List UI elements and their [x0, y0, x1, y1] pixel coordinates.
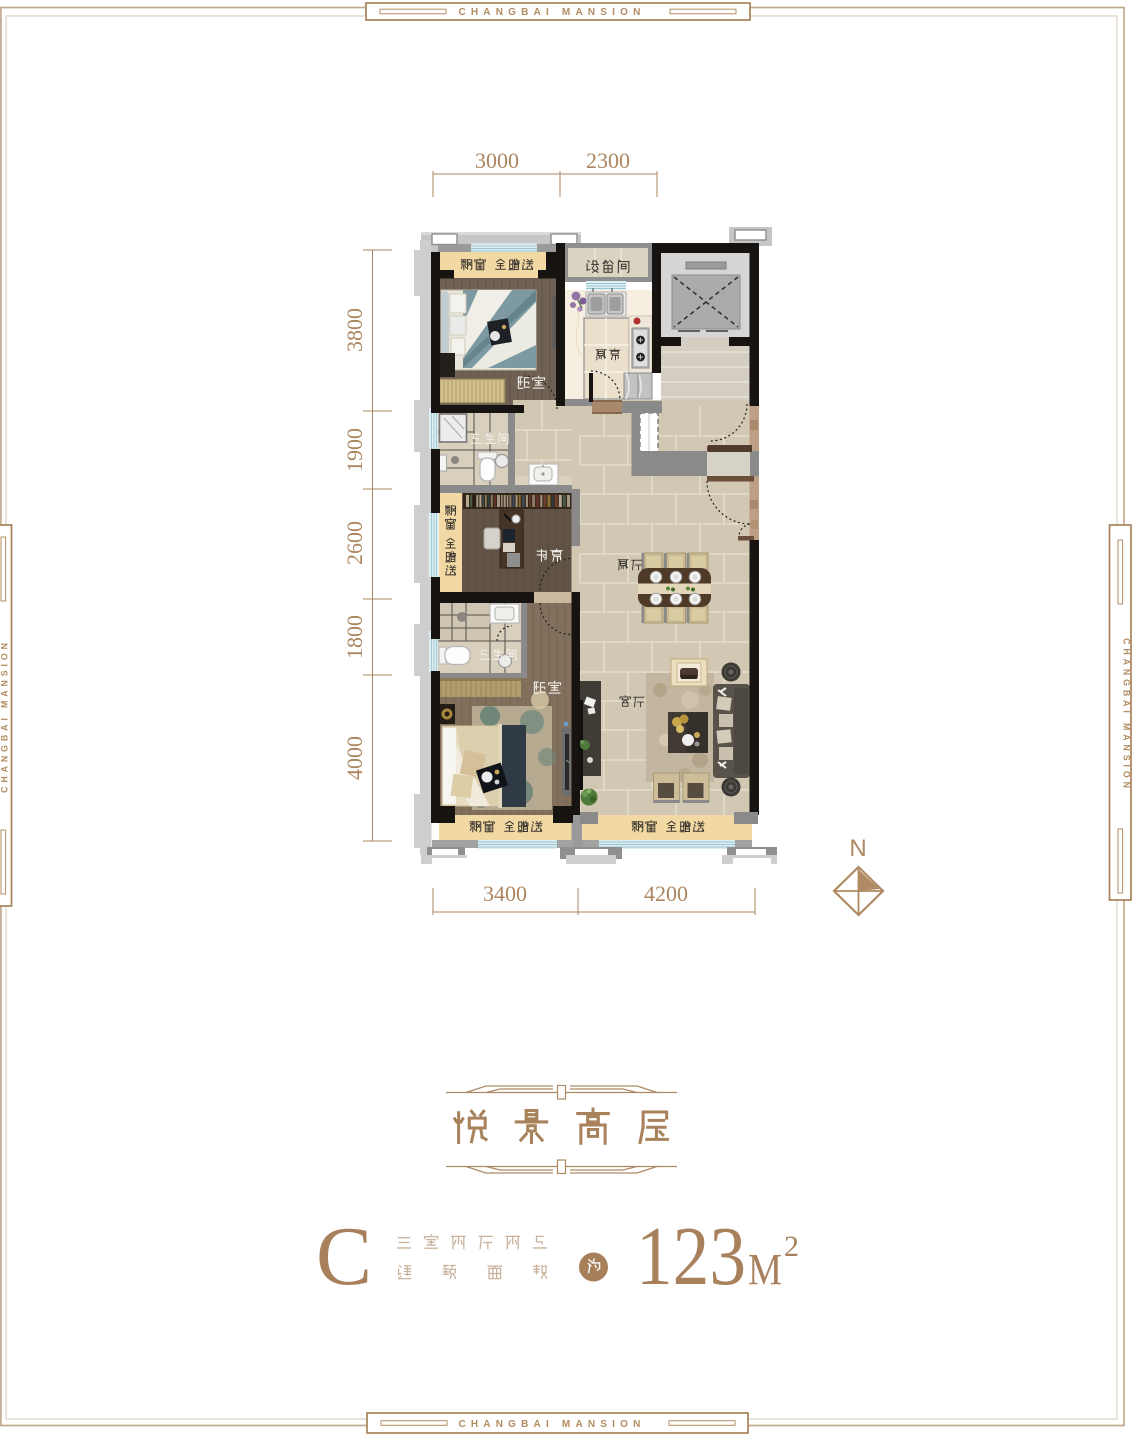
svg-text:123: 123 — [636, 1210, 746, 1303]
svg-text:1800: 1800 — [342, 615, 367, 659]
svg-text:2: 2 — [784, 1230, 799, 1263]
svg-text:3800: 3800 — [342, 308, 367, 352]
svg-text:CHANGBAI MANSION: CHANGBAI MANSION — [458, 7, 645, 18]
svg-text:3000: 3000 — [475, 148, 519, 173]
svg-text:CHANGBAI MANSION: CHANGBAI MANSION — [0, 639, 10, 793]
svg-text:C: C — [316, 1210, 372, 1303]
svg-text:CHANGBAI MANSION: CHANGBAI MANSION — [1122, 638, 1132, 792]
svg-text:3400: 3400 — [483, 881, 527, 906]
svg-text:M: M — [748, 1245, 782, 1294]
svg-text:CHANGBAI MANSION: CHANGBAI MANSION — [458, 1419, 645, 1430]
svg-text:4200: 4200 — [644, 881, 688, 906]
svg-text:4000: 4000 — [342, 736, 367, 780]
svg-text:2600: 2600 — [342, 521, 367, 565]
svg-text:1900: 1900 — [342, 428, 367, 472]
svg-text:2300: 2300 — [586, 148, 630, 173]
svg-text:N: N — [849, 835, 866, 862]
